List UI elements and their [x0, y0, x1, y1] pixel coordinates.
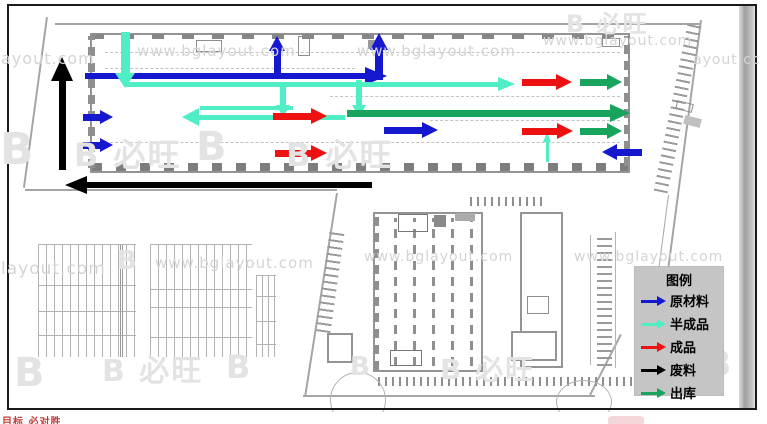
legend-label: 废料 [670, 360, 696, 379]
legend-label: 出库 [670, 383, 696, 402]
legend-label: 成品 [670, 337, 696, 356]
legend-rows: 原材料半成品成品废料出库 [635, 289, 723, 404]
legend-item-outbound: 出库 [635, 381, 723, 404]
legend-arrow-icon-outbound [640, 388, 670, 398]
factory-layout-screenshot: ayout.comwww.bglayout.comwww.bglayout.co… [0, 0, 767, 424]
legend-arrow-icon-semi_finished [640, 319, 670, 329]
legend-item-finished: 成品 [635, 335, 723, 358]
legend-arrow-icon-raw_material [640, 296, 670, 306]
footer-note: 目标 必对胜 [2, 413, 61, 424]
legend-arrow-icon-waste [640, 365, 670, 375]
legend-item-waste: 废料 [635, 358, 723, 381]
legend-arrow-icon-finished [640, 342, 670, 352]
legend-label: 半成品 [670, 314, 709, 333]
legend-label: 原材料 [670, 291, 709, 310]
margin-mask [759, 0, 767, 424]
margin-mask [0, 412, 767, 424]
pink-watermark-blob [608, 416, 644, 424]
legend-box: 图例 原材料半成品成品废料出库 [634, 266, 724, 396]
legend-item-raw_material: 原材料 [635, 289, 723, 312]
legend-title: 图例 [635, 270, 723, 289]
legend-item-semi_finished: 半成品 [635, 312, 723, 335]
margin-mask [0, 0, 7, 424]
